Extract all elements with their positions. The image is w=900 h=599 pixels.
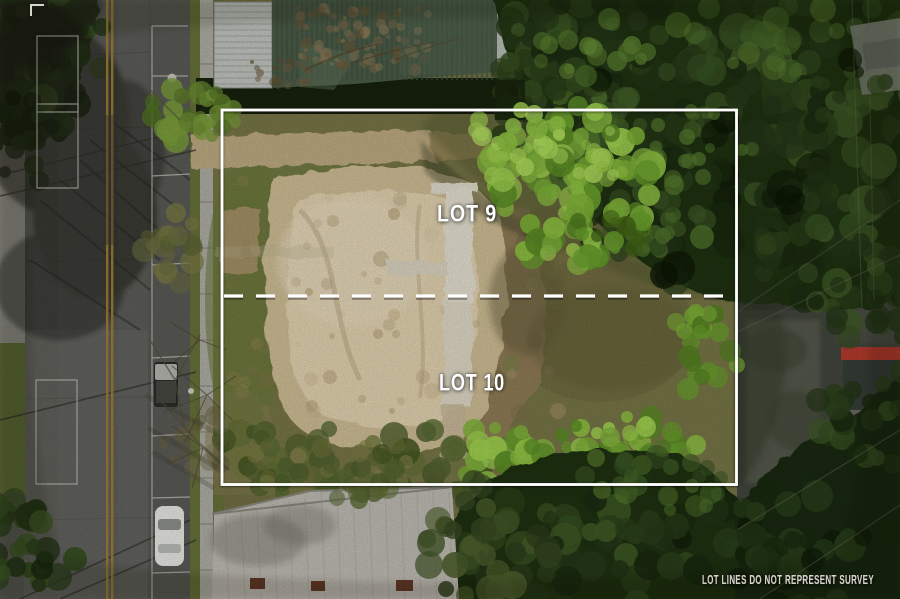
svg-text:LOT 10: LOT 10: [439, 370, 505, 397]
svg-text:LOT 9: LOT 9: [437, 201, 497, 228]
